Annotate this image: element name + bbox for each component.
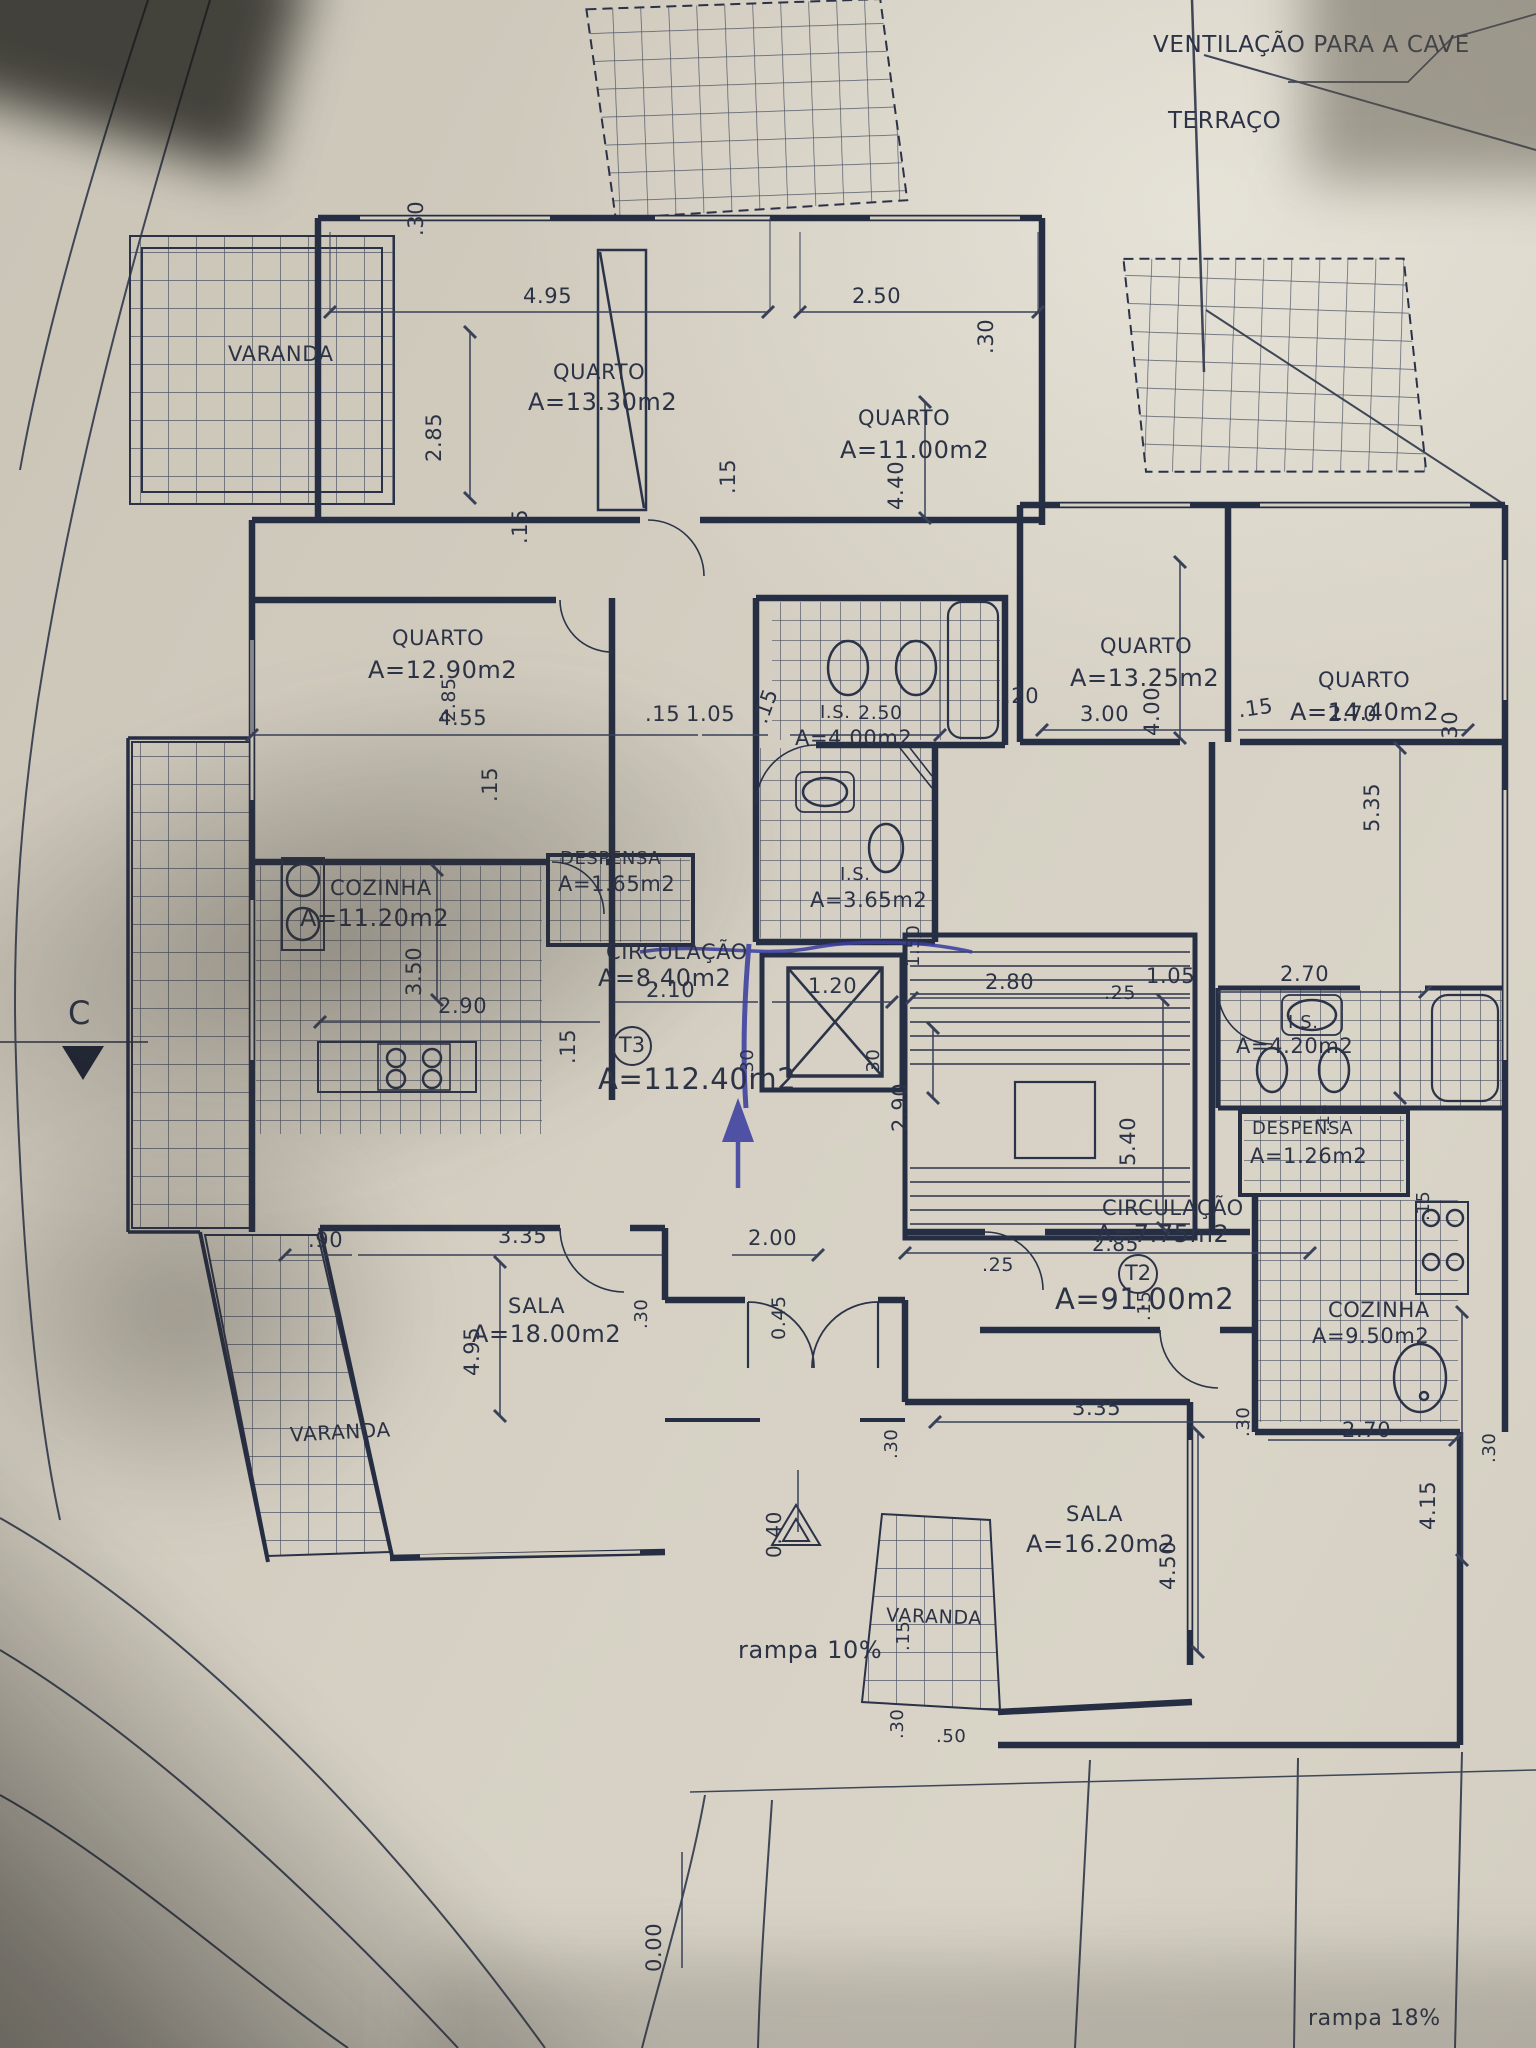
dim: 2.10 — [646, 978, 695, 1002]
room-is420-name: I.S. — [1288, 1012, 1319, 1033]
dim: 4.00 — [1140, 687, 1164, 736]
dim: 2.70 — [1280, 962, 1329, 986]
room-is400-area: A=4.00m2 — [795, 726, 912, 750]
dim: 4.95 — [460, 1327, 484, 1376]
room-despensa-165-area: A=1.65m2 — [558, 872, 675, 896]
dim: 3.35 — [498, 1224, 547, 1248]
apartment-t3-area: A=112.40m2 — [598, 1062, 796, 1096]
room-sala-1800-area: A=18.00m2 — [472, 1320, 621, 1348]
dim: 2.70 — [1342, 1418, 1391, 1442]
dim: .25 — [982, 1254, 1014, 1276]
room-is365-area: A=3.65m2 — [810, 888, 927, 912]
dim: .30 — [1438, 711, 1462, 746]
room-quarto-1290-name: QUARTO — [392, 626, 484, 650]
site-ramp-right: rampa 18% — [1308, 2006, 1441, 2031]
dim: .30 — [974, 319, 998, 354]
dim: 2.90 — [888, 1083, 912, 1132]
room-cozinha-1120-name: COZINHA — [330, 876, 432, 900]
room-circ-840-name: CIRCULAÇÃO — [606, 940, 748, 964]
dim: .50 — [936, 1726, 966, 1747]
room-quarto-1100-name: QUARTO — [858, 406, 950, 430]
dim: .15 — [1314, 1103, 1334, 1132]
dim: .15 — [893, 1621, 914, 1651]
label-section-c: C — [68, 994, 91, 1032]
dim: .15 — [645, 702, 680, 726]
room-sala-1620-name: SALA — [1066, 1502, 1123, 1526]
dim: 5.35 — [1360, 783, 1384, 832]
dim: .30 — [631, 1299, 652, 1329]
label-ventilacao: VENTILAÇÃO PARA A CAVE — [1153, 32, 1470, 58]
dim: 4.40 — [884, 461, 908, 510]
room-quarto-1440-name: QUARTO — [1318, 668, 1410, 692]
room-sala-1620-area: A=16.20m2 — [1026, 1530, 1175, 1558]
dim: 2.80 — [985, 970, 1034, 994]
dim: .30 — [887, 1709, 908, 1739]
dim: .25 — [1104, 982, 1136, 1004]
dim: 3.35 — [1072, 1396, 1121, 1420]
room-quarto-1100-area: A=11.00m2 — [840, 436, 989, 464]
dim: 2.50 — [858, 702, 903, 724]
room-despensa-126-name: DESPENSA — [1252, 1118, 1353, 1139]
dim: .20 — [1004, 684, 1039, 708]
dim: 0.45 — [768, 1295, 790, 1340]
dim: .30 — [1479, 1433, 1500, 1463]
room-sala-1800-name: SALA — [508, 1294, 565, 1318]
dim: 1.20 — [808, 974, 857, 998]
room-varanda-tl: VARANDA — [228, 342, 334, 366]
room-cozinha-1120-area: A=11.20m2 — [300, 904, 449, 932]
room-quarto-1330-area: A=13.30m2 — [528, 388, 677, 416]
dim: 2.70 — [1328, 702, 1377, 726]
room-is420-area: A=4.20m2 — [1236, 1034, 1353, 1058]
dim: 2.85 — [1092, 1232, 1139, 1256]
dim: .15 — [1134, 1291, 1155, 1321]
room-quarto-1325-name: QUARTO — [1100, 634, 1192, 658]
dim: .30 — [737, 1049, 758, 1079]
room-quarto-1330-name: QUARTO — [553, 360, 645, 384]
room-despensa-165-name: DESPENSA — [560, 848, 661, 869]
dim: 1.05 — [1146, 964, 1195, 988]
dim: .30 — [863, 1049, 884, 1079]
room-despensa-126-area: A=1.26m2 — [1250, 1144, 1367, 1168]
dim: 3.00 — [1080, 702, 1129, 726]
dim: 2.90 — [438, 994, 487, 1018]
dim: .30 — [1233, 1407, 1254, 1437]
room-is400-name: I.S. — [820, 702, 851, 723]
room-cozinha-950-area: A=9.50m2 — [1312, 1324, 1429, 1348]
dim: 1.05 — [686, 702, 735, 726]
dim: 3.50 — [402, 947, 426, 996]
dim: .30 — [881, 1429, 902, 1459]
room-circ-775-name: CIRCULAÇÃO — [1102, 1196, 1244, 1220]
dim: .15 — [1413, 1191, 1434, 1221]
pen-arrow-icon — [722, 1098, 754, 1142]
dim: 2.85 — [438, 677, 460, 722]
site-level-zero: 0.00 — [642, 1923, 666, 1972]
dim: .15 — [556, 1029, 580, 1064]
dim: .30 — [404, 201, 428, 236]
dim: .15 — [1237, 694, 1275, 723]
site-entry-step: 0.40 — [762, 1511, 786, 1558]
dim: 5.40 — [1116, 1117, 1140, 1166]
room-cozinha-950-name: COZINHA — [1328, 1298, 1430, 1322]
dim: 4.95 — [523, 284, 572, 308]
dim: 1.50 — [903, 925, 924, 967]
dim: 4.15 — [1416, 1481, 1440, 1530]
label-terraco: TERRAÇO — [1168, 108, 1281, 134]
site-ramp-left: rampa 10% — [738, 1636, 882, 1664]
dim: 4.50 — [1156, 1541, 1180, 1590]
dim: .15 — [508, 509, 532, 544]
dim: .15 — [716, 459, 740, 494]
dim: 2.50 — [852, 284, 901, 308]
floor-plan-photo: VENTILAÇÃO PARA A CAVE TERRAÇO C VARANDA… — [0, 0, 1536, 2048]
dim: .15 — [478, 767, 502, 802]
dim: 2.00 — [748, 1226, 797, 1250]
section-marker-triangle — [62, 1046, 104, 1080]
room-is365-name: I.S. — [840, 864, 871, 885]
apartment-t3-tag: T3 — [612, 1026, 652, 1066]
dim: .90 — [308, 1228, 343, 1252]
dim: 2.85 — [422, 413, 446, 462]
